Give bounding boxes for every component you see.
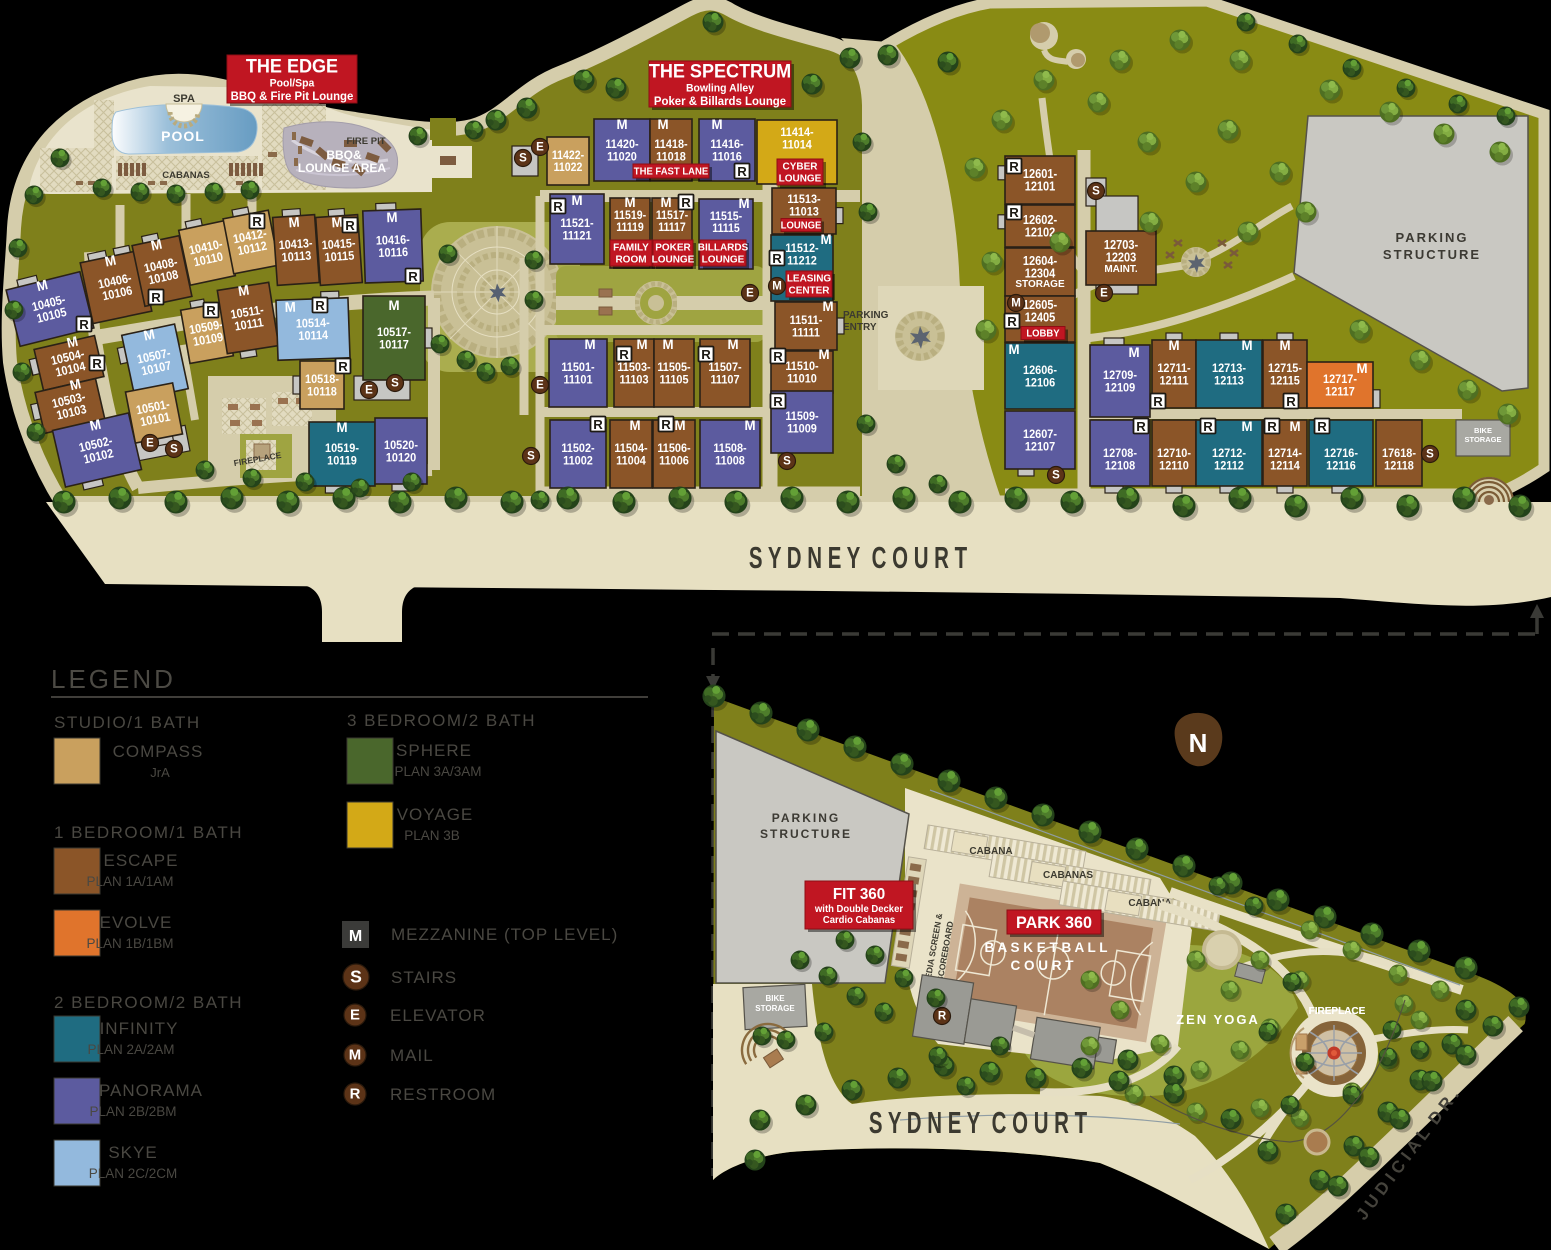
svg-text:12115: 12115 <box>1270 374 1300 388</box>
svg-text:LOUNGE: LOUNGE <box>779 173 822 184</box>
svg-text:M: M <box>584 337 595 352</box>
svg-text:M: M <box>386 210 398 226</box>
svg-text:ELEVATOR: ELEVATOR <box>390 1006 486 1025</box>
svg-text:CENTER: CENTER <box>789 285 831 296</box>
svg-text:2 BEDROOM/2 BATH: 2 BEDROOM/2 BATH <box>54 993 243 1012</box>
svg-text:S Y D N E Y C O U R T: S Y D N E Y C O U R T <box>869 1105 1087 1140</box>
svg-text:M: M <box>1008 342 1019 357</box>
svg-text:VOYAGE: VOYAGE <box>397 805 474 824</box>
svg-text:ZEN YOGA: ZEN YOGA <box>1176 1012 1260 1027</box>
svg-text:11014: 11014 <box>782 138 812 152</box>
svg-text:MAIL: MAIL <box>390 1046 434 1065</box>
svg-text:11519-: 11519- <box>614 210 647 223</box>
svg-text:S: S <box>1052 470 1060 482</box>
svg-text:LEASING: LEASING <box>787 273 831 284</box>
svg-text:PLAN 2B/2BM: PLAN 2B/2BM <box>89 1104 176 1119</box>
svg-text:R: R <box>1136 419 1146 434</box>
svg-text:M: M <box>1241 338 1252 353</box>
svg-text:Bowling Alley: Bowling Alley <box>686 82 754 94</box>
svg-text:11020: 11020 <box>607 150 637 164</box>
svg-text:R: R <box>938 1011 947 1023</box>
svg-text:E: E <box>350 1008 360 1024</box>
svg-text:LOUNGE: LOUNGE <box>652 254 695 265</box>
svg-text:MEZZANINE (TOP LEVEL): MEZZANINE (TOP LEVEL) <box>391 925 618 944</box>
svg-text:11009: 11009 <box>787 422 817 436</box>
svg-text:LOUNGE: LOUNGE <box>702 254 745 265</box>
svg-text:SKYE: SKYE <box>108 1143 157 1162</box>
svg-text:M: M <box>636 337 647 352</box>
svg-text:M: M <box>1011 298 1021 310</box>
svg-text:PLAN 1B/1BM: PLAN 1B/1BM <box>86 936 173 951</box>
svg-text:CABANA: CABANA <box>969 846 1012 857</box>
svg-text:11018: 11018 <box>656 150 686 164</box>
svg-text:E: E <box>746 288 754 300</box>
svg-text:R: R <box>92 356 102 371</box>
svg-text:M: M <box>822 299 833 314</box>
svg-text:S: S <box>527 451 535 463</box>
svg-text:M: M <box>349 928 362 945</box>
svg-text:R: R <box>408 269 418 284</box>
svg-text:STRUCTURE: STRUCTURE <box>760 827 852 841</box>
svg-text:12107: 12107 <box>1025 440 1055 454</box>
svg-text:12108: 12108 <box>1105 459 1136 473</box>
svg-text:POKER: POKER <box>655 242 691 253</box>
svg-text:10113: 10113 <box>281 249 312 265</box>
svg-text:11212: 11212 <box>787 254 817 268</box>
svg-text:M: M <box>388 298 399 313</box>
svg-text:LEGEND: LEGEND <box>51 664 176 694</box>
svg-text:12405: 12405 <box>1025 311 1056 325</box>
svg-text:COMPASS: COMPASS <box>113 742 204 761</box>
svg-text:M: M <box>629 418 640 433</box>
svg-text:M: M <box>1241 419 1252 434</box>
svg-text:R: R <box>206 303 216 318</box>
svg-text:M: M <box>331 214 343 230</box>
svg-text:M: M <box>1279 338 1290 353</box>
svg-text:11515-: 11515- <box>710 211 743 224</box>
svg-text:E: E <box>146 438 154 450</box>
svg-text:R: R <box>345 218 355 233</box>
svg-text:R: R <box>701 347 711 362</box>
svg-text:ROOM: ROOM <box>615 254 646 265</box>
svg-text:PLAN 1A/1AM: PLAN 1A/1AM <box>86 874 173 889</box>
svg-text:M: M <box>288 214 300 230</box>
svg-text:Pool/Spa: Pool/Spa <box>270 77 316 89</box>
svg-text:R: R <box>773 349 783 364</box>
svg-text:M: M <box>1168 338 1179 353</box>
svg-text:10118: 10118 <box>307 385 337 399</box>
svg-text:10120: 10120 <box>386 451 416 465</box>
svg-text:E: E <box>365 385 373 397</box>
svg-text:N: N <box>1189 728 1208 758</box>
svg-text:12101: 12101 <box>1025 180 1056 194</box>
svg-text:S: S <box>170 444 178 456</box>
svg-text:12118: 12118 <box>1384 459 1414 473</box>
svg-text:THE SPECTRUM: THE SPECTRUM <box>649 60 791 82</box>
svg-text:LOUNGE AREA: LOUNGE AREA <box>298 161 387 175</box>
svg-text:PARKING: PARKING <box>1396 230 1469 245</box>
svg-text:M: M <box>624 195 635 210</box>
svg-text:FAMILY: FAMILY <box>613 242 649 253</box>
svg-text:PARKING: PARKING <box>772 811 840 825</box>
svg-text:11107: 11107 <box>710 373 739 387</box>
svg-text:12112: 12112 <box>1214 459 1244 473</box>
svg-text:11010: 11010 <box>787 372 817 386</box>
svg-text:M: M <box>662 337 673 352</box>
svg-text:M: M <box>349 1048 361 1064</box>
svg-text:STRUCTURE: STRUCTURE <box>1383 247 1481 262</box>
svg-text:PANORAMA: PANORAMA <box>99 1081 203 1100</box>
svg-text:R: R <box>772 251 782 266</box>
svg-text:10119: 10119 <box>327 454 357 468</box>
svg-text:R: R <box>151 290 161 305</box>
svg-text:R: R <box>315 298 325 313</box>
svg-text:THE EDGE: THE EDGE <box>246 55 338 77</box>
svg-text:R: R <box>737 164 747 179</box>
svg-text:CABANAS: CABANAS <box>1043 870 1093 881</box>
svg-text:EVOLVE: EVOLVE <box>100 913 173 932</box>
svg-text:R: R <box>619 347 629 362</box>
svg-text:12109: 12109 <box>1105 381 1136 395</box>
svg-text:R: R <box>1203 419 1213 434</box>
svg-text:LOUNGE: LOUNGE <box>781 220 822 231</box>
svg-text:PARKING: PARKING <box>843 310 889 321</box>
svg-text:with Double Decker: with Double Decker <box>814 904 903 915</box>
svg-text:10114: 10114 <box>298 328 329 343</box>
svg-text:12110: 12110 <box>1159 459 1189 473</box>
svg-text:10116: 10116 <box>378 245 409 260</box>
svg-text:11002: 11002 <box>563 454 593 468</box>
svg-text:BBQ & Fire Pit Lounge: BBQ & Fire Pit Lounge <box>231 90 354 103</box>
svg-text:11022: 11022 <box>554 162 583 175</box>
svg-text:R: R <box>681 195 691 210</box>
svg-text:FIT 360: FIT 360 <box>833 886 886 903</box>
svg-text:11103: 11103 <box>619 373 649 387</box>
svg-text:R: R <box>553 199 563 214</box>
svg-text:CYBER: CYBER <box>783 161 818 172</box>
svg-text:M: M <box>1128 345 1139 360</box>
svg-text:M: M <box>336 420 347 435</box>
svg-text:M: M <box>660 195 671 210</box>
svg-text:E: E <box>536 142 544 154</box>
svg-text:11101: 11101 <box>563 373 593 387</box>
svg-text:BIKE: BIKE <box>765 994 785 1003</box>
svg-text:M: M <box>711 117 722 132</box>
svg-text:INFINITY: INFINITY <box>100 1019 179 1038</box>
svg-text:10115: 10115 <box>324 249 355 265</box>
svg-text:11004: 11004 <box>616 454 646 468</box>
svg-text:11422-: 11422- <box>552 150 585 163</box>
svg-text:CABANAS: CABANAS <box>162 170 210 181</box>
svg-text:STAIRS: STAIRS <box>391 968 457 987</box>
svg-text:R: R <box>1286 394 1296 409</box>
svg-text:S: S <box>519 153 527 165</box>
svg-text:S: S <box>350 967 362 987</box>
svg-text:S: S <box>783 456 791 468</box>
svg-text:12106: 12106 <box>1025 376 1056 390</box>
svg-text:R: R <box>661 417 671 432</box>
svg-text:Cardio Cabanas: Cardio Cabanas <box>823 915 896 926</box>
svg-text:R: R <box>1153 394 1163 409</box>
svg-text:E: E <box>536 380 544 392</box>
svg-text:M: M <box>818 347 829 362</box>
svg-text:R: R <box>1009 159 1019 174</box>
svg-text:R: R <box>1009 205 1019 220</box>
svg-text:11517-: 11517- <box>656 210 689 223</box>
svg-text:STORAGE: STORAGE <box>1465 435 1502 444</box>
svg-text:Poker & Billards Lounge: Poker & Billards Lounge <box>654 95 787 108</box>
svg-text:THE FAST LANE: THE FAST LANE <box>634 166 709 177</box>
svg-text:S: S <box>1426 449 1434 461</box>
svg-text:E: E <box>1100 288 1108 300</box>
svg-text:BILLARDS: BILLARDS <box>698 242 749 253</box>
svg-text:PLAN 3B: PLAN 3B <box>404 828 460 843</box>
svg-text:R: R <box>773 394 783 409</box>
svg-text:JrA: JrA <box>150 765 170 780</box>
svg-text:M: M <box>1356 361 1367 376</box>
svg-text:M: M <box>727 337 738 352</box>
svg-text:S Y D N E Y C O U R T: S Y D N E Y C O U R T <box>749 540 967 575</box>
svg-text:11008: 11008 <box>715 454 745 468</box>
svg-text:PARK 360: PARK 360 <box>1016 912 1092 931</box>
svg-text:PLAN 3A/3AM: PLAN 3A/3AM <box>394 764 481 779</box>
svg-text:M: M <box>237 282 250 299</box>
svg-text:STORAGE: STORAGE <box>755 1004 795 1013</box>
svg-text:M: M <box>284 299 296 315</box>
svg-text:ENTRY: ENTRY <box>843 322 877 333</box>
svg-text:ESCAPE: ESCAPE <box>104 851 179 870</box>
svg-text:R: R <box>1007 314 1017 329</box>
svg-text:R: R <box>1267 419 1277 434</box>
svg-text:R: R <box>350 1087 361 1103</box>
svg-text:R: R <box>338 359 348 374</box>
svg-text:STUDIO/1 BATH: STUDIO/1 BATH <box>54 713 201 732</box>
svg-text:11006: 11006 <box>659 454 689 468</box>
svg-text:PLAN 2C/2CM: PLAN 2C/2CM <box>89 1166 178 1181</box>
svg-text:POOL: POOL <box>161 128 205 144</box>
svg-text:12117: 12117 <box>1325 385 1355 399</box>
svg-text:STORAGE: STORAGE <box>1015 279 1065 290</box>
svg-text:BIKE: BIKE <box>1474 426 1492 435</box>
svg-text:M: M <box>1289 419 1300 434</box>
svg-text:SPHERE: SPHERE <box>396 741 472 760</box>
svg-text:3 BEDROOM/2 BATH: 3 BEDROOM/2 BATH <box>347 711 536 730</box>
svg-text:M: M <box>657 117 668 132</box>
svg-text:M: M <box>772 281 782 293</box>
svg-text:M: M <box>674 418 685 433</box>
svg-text:11119: 11119 <box>616 222 644 235</box>
svg-text:1 BEDROOM/1 BATH: 1 BEDROOM/1 BATH <box>54 823 243 842</box>
svg-text:12111: 12111 <box>1159 374 1189 388</box>
svg-text:M: M <box>744 418 755 433</box>
svg-text:12113: 12113 <box>1214 374 1244 388</box>
svg-text:M: M <box>616 117 627 132</box>
svg-text:R: R <box>1317 419 1327 434</box>
svg-text:11117: 11117 <box>658 222 686 235</box>
svg-text:R: R <box>593 417 603 432</box>
svg-text:FIREPLACE: FIREPLACE <box>1309 1006 1366 1017</box>
svg-text:RESTROOM: RESTROOM <box>390 1085 496 1104</box>
svg-text:M: M <box>571 193 582 208</box>
svg-text:FIRE PIT: FIRE PIT <box>346 136 385 147</box>
svg-text:12203: 12203 <box>1106 251 1137 265</box>
svg-text:S: S <box>1092 186 1100 198</box>
svg-text:11115: 11115 <box>712 223 740 236</box>
svg-text:11013: 11013 <box>789 205 819 219</box>
svg-text:B A S K E T B A L L: B A S K E T B A L L <box>984 940 1107 955</box>
svg-text:C O U R T: C O U R T <box>1011 958 1075 973</box>
svg-text:BBQ&: BBQ& <box>326 148 362 162</box>
svg-text:11111: 11111 <box>792 326 820 340</box>
svg-text:S: S <box>391 378 399 390</box>
svg-text:11121: 11121 <box>562 229 592 243</box>
svg-text:12116: 12116 <box>1326 459 1356 473</box>
svg-text:LOBBY: LOBBY <box>1026 328 1060 339</box>
svg-text:10117: 10117 <box>379 338 409 352</box>
svg-text:R: R <box>252 214 262 229</box>
svg-text:M: M <box>738 196 749 211</box>
svg-text:11016: 11016 <box>712 150 742 164</box>
svg-text:PLAN 2A/2AM: PLAN 2A/2AM <box>87 1042 174 1057</box>
svg-text:SPA: SPA <box>173 93 195 105</box>
svg-text:R: R <box>79 317 89 332</box>
svg-text:12114: 12114 <box>1270 459 1300 473</box>
svg-text:11105: 11105 <box>659 373 689 387</box>
svg-text:MAINT.: MAINT. <box>1104 264 1138 275</box>
